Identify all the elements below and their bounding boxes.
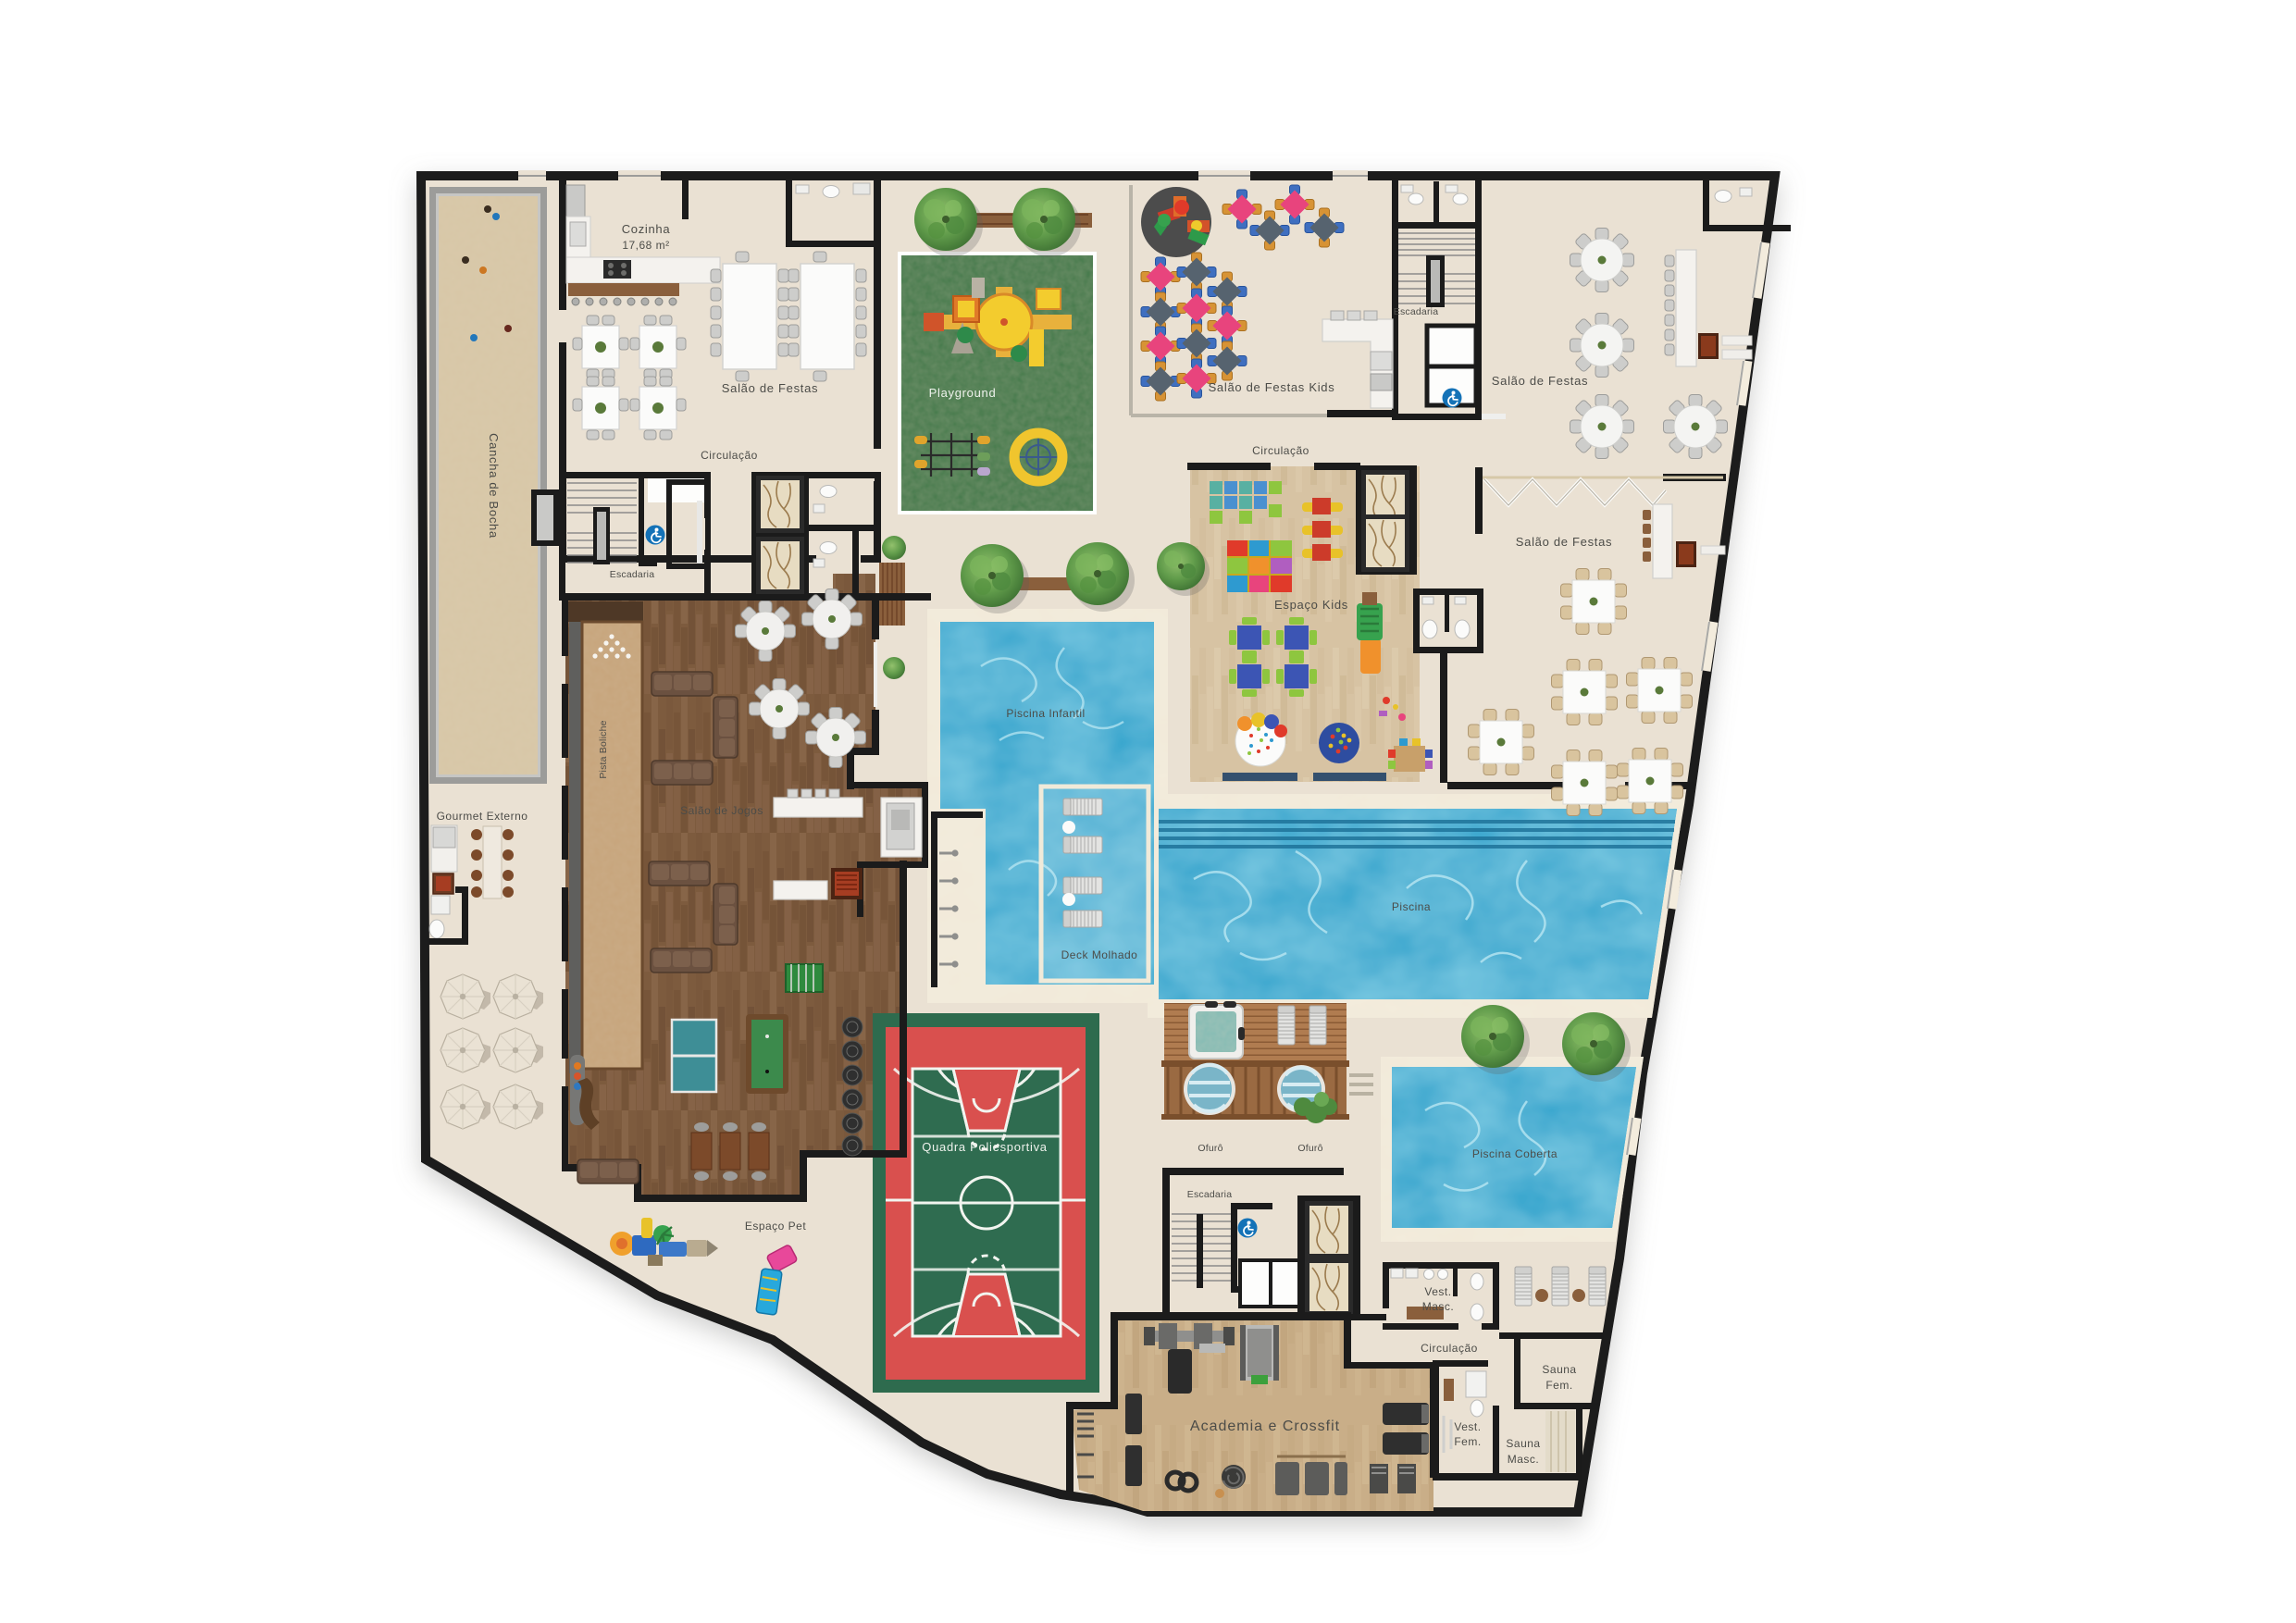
svg-text:Salão de Festas Kids: Salão de Festas Kids [1209,380,1335,394]
svg-text:Salão de Jogos: Salão de Jogos [680,804,763,817]
svg-text:Espaço Kids: Espaço Kids [1274,598,1348,612]
svg-text:Ofurô: Ofurô [1198,1143,1222,1154]
svg-text:Academia e Crossfit: Academia e Crossfit [1190,1419,1340,1434]
svg-text:Circulação: Circulação [701,449,758,462]
svg-text:Salão de Festas: Salão de Festas [722,381,818,395]
svg-text:Salão de Festas: Salão de Festas [1516,535,1612,549]
svg-text:Pista Boliche: Pista Boliche [598,720,609,778]
svg-text:Sauna: Sauna [1506,1437,1540,1450]
svg-text:Vest.: Vest. [1454,1420,1481,1433]
svg-text:Quadra Poliesportiva: Quadra Poliesportiva [922,1140,1047,1154]
svg-text:Cozinha: Cozinha [622,222,671,236]
svg-text:Escadaria: Escadaria [1394,306,1439,317]
svg-text:Sauna: Sauna [1542,1363,1576,1376]
svg-text:Fem.: Fem. [1454,1435,1481,1448]
svg-text:Escadaria: Escadaria [610,569,655,580]
svg-text:Circulação: Circulação [1252,444,1309,457]
svg-text:Deck Molhado: Deck Molhado [1061,948,1138,961]
svg-text:Masc.: Masc. [1508,1453,1540,1466]
svg-text:Salão de Festas: Salão de Festas [1492,374,1588,388]
svg-text:Piscina Coberta: Piscina Coberta [1472,1147,1558,1160]
svg-text:Espaço Pet: Espaço Pet [745,1220,807,1233]
svg-text:17,68 m²: 17,68 m² [622,239,669,252]
svg-text:Gourmet Externo: Gourmet Externo [437,810,528,823]
svg-text:Piscina Infantil: Piscina Infantil [1006,707,1085,720]
svg-text:Masc.: Masc. [1422,1300,1455,1313]
svg-text:Escadaria: Escadaria [1187,1189,1233,1200]
svg-text:Piscina: Piscina [1392,900,1431,913]
svg-text:Circulação: Circulação [1421,1342,1478,1355]
svg-text:Cancha de Bocha: Cancha de Bocha [487,433,501,539]
svg-text:Fem.: Fem. [1545,1379,1572,1392]
svg-text:Playground: Playground [929,386,997,400]
svg-text:Vest.: Vest. [1424,1285,1451,1298]
svg-text:Ofurô: Ofurô [1297,1143,1322,1154]
